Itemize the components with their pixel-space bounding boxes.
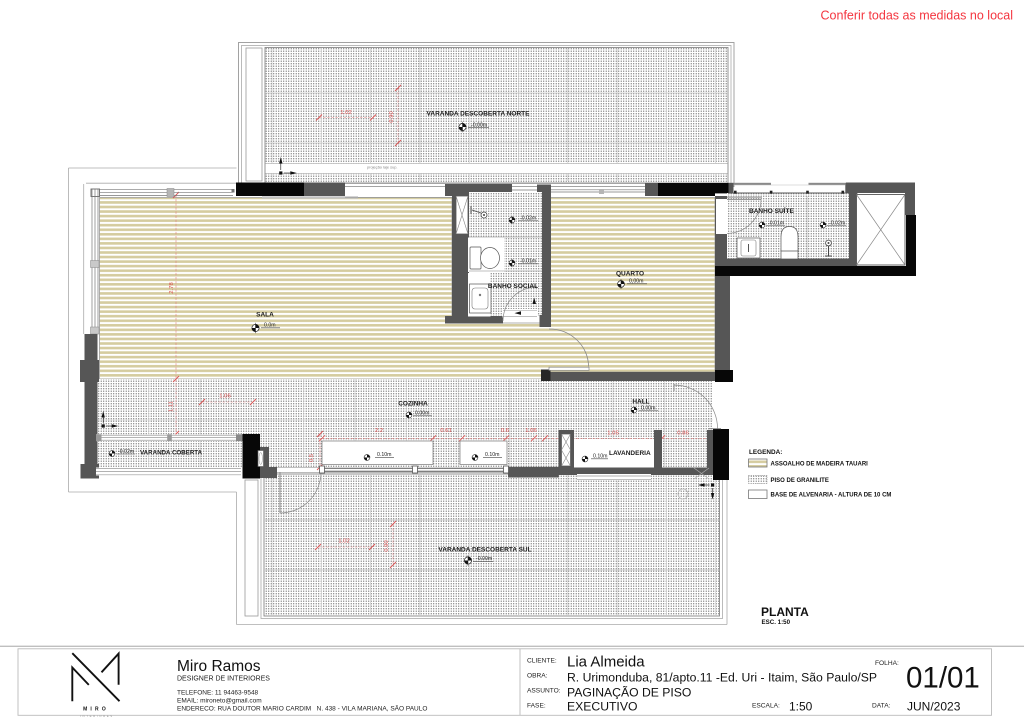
svg-text:JUN/2023: JUN/2023 <box>907 700 961 714</box>
svg-text:COZINHA: COZINHA <box>398 401 428 408</box>
svg-text:1:50: 1:50 <box>789 700 813 714</box>
svg-text:0.6: 0.6 <box>501 428 510 434</box>
svg-text:1.02: 1.02 <box>338 539 349 545</box>
svg-text:ENDERECO: RUA DOUTOR MARIO CAR: ENDERECO: RUA DOUTOR MARIO CARDIM N. 438… <box>177 704 427 713</box>
svg-text:LEGENDA:: LEGENDA: <box>749 449 782 456</box>
svg-text:01/01: 01/01 <box>906 662 980 695</box>
svg-text:DATA:: DATA: <box>872 703 891 710</box>
svg-text:FASE:: FASE: <box>527 703 546 710</box>
svg-text:1.06: 1.06 <box>525 428 537 434</box>
svg-text:0.90: 0.90 <box>384 540 390 552</box>
svg-text:1.06: 1.06 <box>219 394 231 400</box>
svg-text:VARANDA COBERTA: VARANDA COBERTA <box>140 449 203 456</box>
svg-text:PAGINAÇÃO DE PISO: PAGINAÇÃO DE PISO <box>567 686 691 700</box>
svg-text:Lia Almeida: Lia Almeida <box>567 654 645 671</box>
svg-text:QUARTO: QUARTO <box>616 271 644 278</box>
svg-text:SALA: SALA <box>256 312 274 319</box>
svg-text:INTERIORES: INTERIORES <box>80 714 114 718</box>
svg-text:BASE DE ALVENARIA - ALTURA DE: BASE DE ALVENARIA - ALTURA DE 10 CM <box>771 493 892 499</box>
svg-text:VARANDA DESCOBERTA SUL: VARANDA DESCOBERTA SUL <box>438 547 531 554</box>
svg-text:PISO DE GRANILITE: PISO DE GRANILITE <box>771 478 829 484</box>
svg-text:2.2: 2.2 <box>375 428 383 434</box>
svg-text:1.05: 1.05 <box>607 431 619 437</box>
svg-text:TELEFONE: 11 94463-9548: TELEFONE: 11 94463-9548 <box>177 690 259 697</box>
svg-text:DESIGNER DE INTERIORES: DESIGNER DE INTERIORES <box>177 675 270 682</box>
svg-text:2.78: 2.78 <box>169 282 175 294</box>
svg-text:EMAIL: mironeto@gmail.com: EMAIL: mironeto@gmail.com <box>177 698 262 705</box>
svg-text:ASSOALHO DE MADEIRA TAUARI: ASSOALHO DE MADEIRA TAUARI <box>771 461 869 467</box>
svg-text:FOLHA:: FOLHA: <box>875 660 899 667</box>
svg-text:VARANDA DESCOBERTA NORTE: VARANDA DESCOBERTA NORTE <box>427 111 531 118</box>
svg-text:OBRA:: OBRA: <box>527 673 548 680</box>
svg-text:PLANTA: PLANTA <box>761 605 809 619</box>
svg-text:LAVANDERIA: LAVANDERIA <box>609 450 651 457</box>
svg-text:HALL: HALL <box>632 399 649 406</box>
svg-text:1.11: 1.11 <box>169 401 175 412</box>
svg-text:Miro Ramos: Miro Ramos <box>177 658 261 675</box>
svg-text:CLIENTE:: CLIENTE: <box>527 658 557 665</box>
svg-text:BANHO SUÍTE: BANHO SUÍTE <box>749 206 794 215</box>
svg-text:MIRO: MIRO <box>83 706 109 712</box>
svg-text:projeção laje sup.: projeção laje sup. <box>367 165 398 170</box>
svg-text:EXECUTIVO: EXECUTIVO <box>567 700 637 714</box>
svg-text:0.90: 0.90 <box>389 111 395 123</box>
svg-text:BANHO SOCIAL: BANHO SOCIAL <box>488 283 538 290</box>
svg-text:0.5: 0.5 <box>309 453 315 462</box>
svg-text:R. Urimonduba, 81/apto.11 -Ed.: R. Urimonduba, 81/apto.11 -Ed. Uri - Ita… <box>567 671 877 685</box>
svg-text:0.61: 0.61 <box>440 428 451 434</box>
svg-text:ESC. 1:50: ESC. 1:50 <box>762 619 791 626</box>
svg-text:1.02: 1.02 <box>340 110 351 116</box>
svg-text:0.86: 0.86 <box>677 431 689 437</box>
svg-text:ASSUNTO:: ASSUNTO: <box>527 688 561 695</box>
svg-text:Conferir todas as medidas no l: Conferir todas as medidas no local <box>821 9 1013 23</box>
svg-text:ESCALA:: ESCALA: <box>752 703 780 710</box>
